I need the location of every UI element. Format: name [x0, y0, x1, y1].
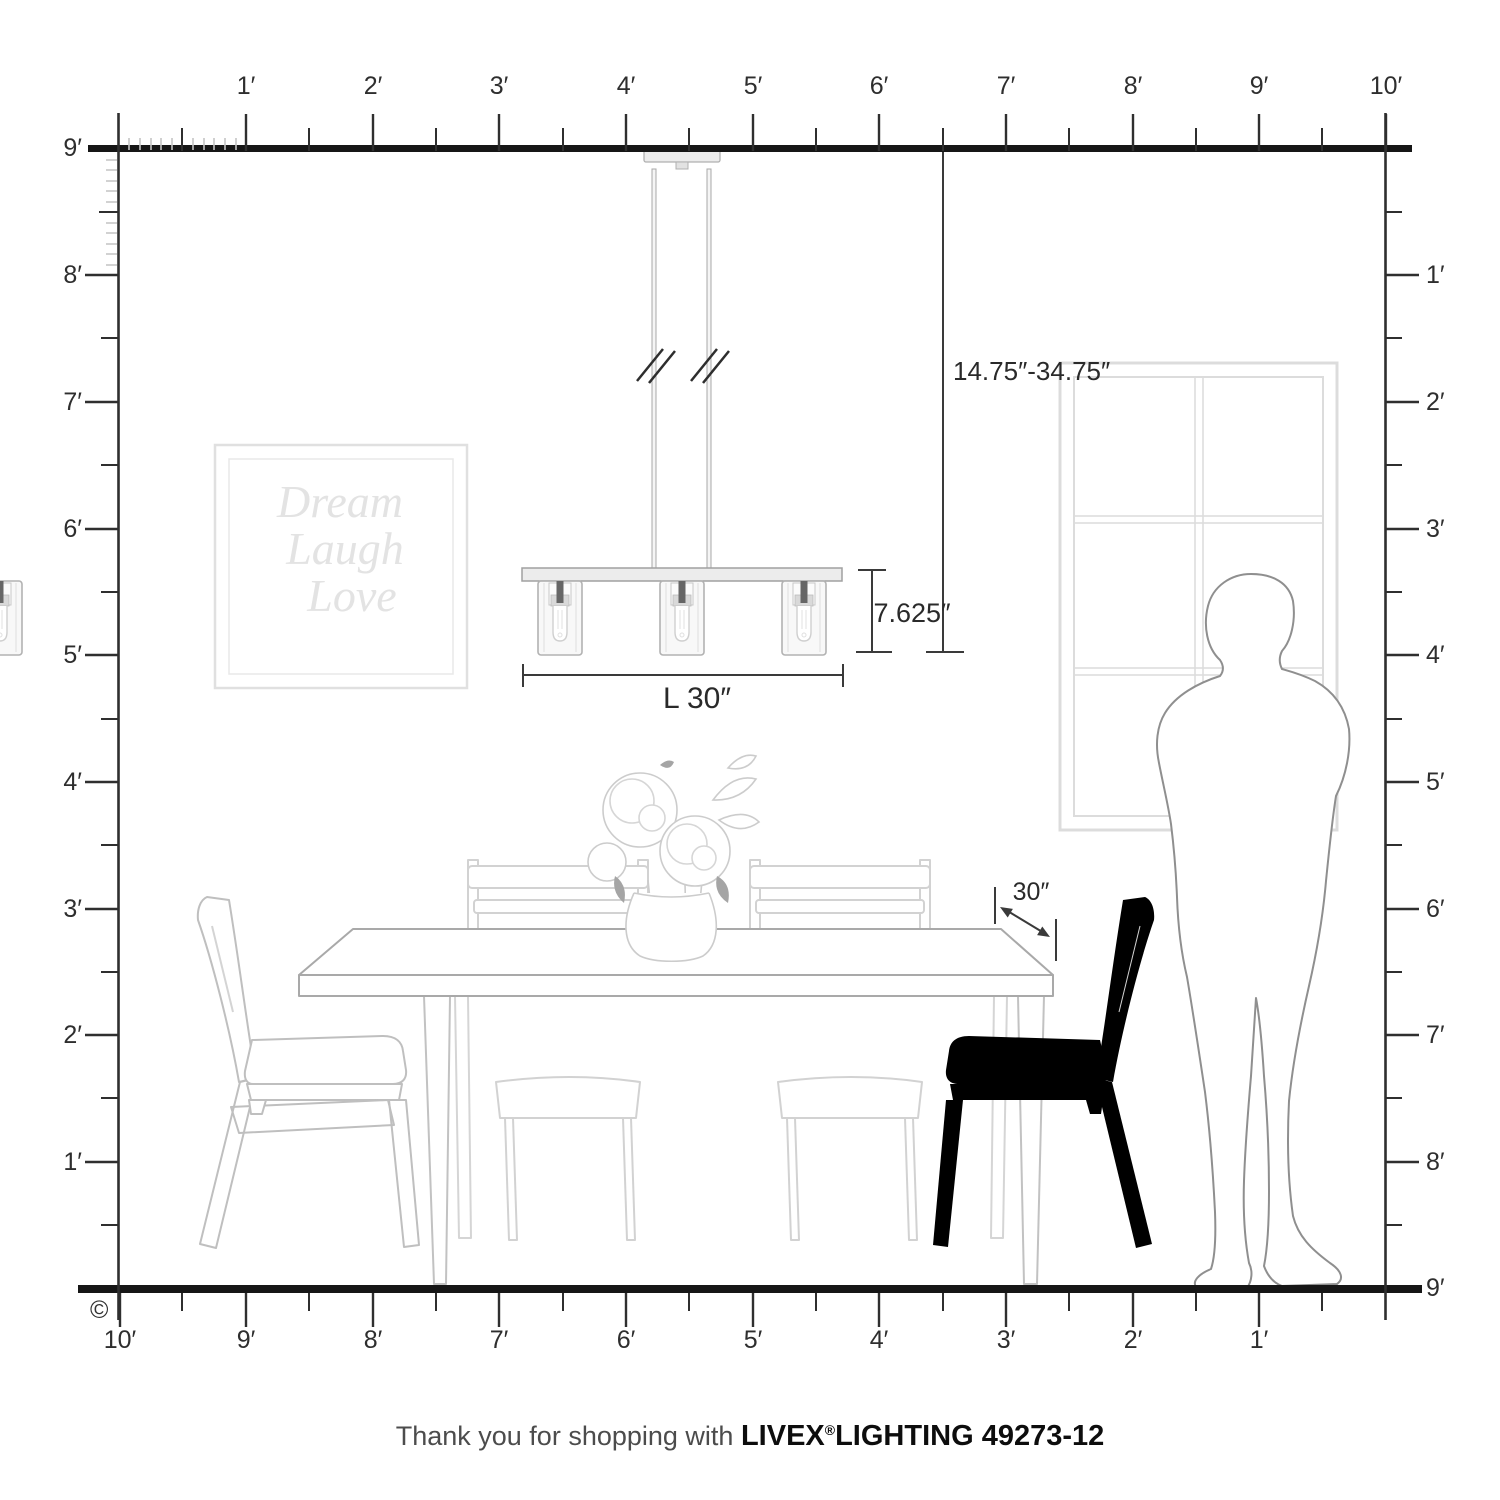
wall-art-line: Love: [246, 572, 458, 619]
right-ruler-label: 6′: [1426, 895, 1445, 923]
fixture-length-dimension: L 30″: [627, 682, 767, 716]
wall-art-line: Laugh: [232, 525, 458, 572]
left-ruler-label: 3′: [28, 895, 82, 923]
left-ruler-label: 8′: [28, 261, 82, 289]
bottom-ruler-label: 9′: [221, 1326, 271, 1354]
right-ruler-label: 9′: [1426, 1274, 1445, 1302]
bottom-ruler-label: 8′: [348, 1326, 398, 1354]
right-ruler-label: 2′: [1426, 388, 1445, 416]
left-ruler-label: 4′: [28, 768, 82, 796]
top-ruler-label: 9′: [1234, 72, 1284, 100]
fixture-bar: [522, 568, 842, 581]
top-ruler-label: 6′: [854, 72, 904, 100]
right-ruler-label: 4′: [1426, 641, 1445, 669]
bottom-ruler-label: 6′: [601, 1326, 651, 1354]
top-ruler-label: 5′: [728, 72, 778, 100]
right-ruler-label: 7′: [1426, 1021, 1445, 1049]
left-ruler-label: 7′: [28, 388, 82, 416]
left-ruler-label: 5′: [28, 641, 82, 669]
hang-height-line: [926, 152, 964, 652]
brand-name: LIVEX: [741, 1420, 825, 1452]
right-ruler-label: 3′: [1426, 515, 1445, 543]
wall-art-text: Dream Laugh Love: [222, 478, 458, 619]
top-ruler-label: 10′: [1358, 72, 1414, 100]
scene-graphics: [0, 0, 1500, 1500]
bottom-ruler-label: 5′: [728, 1326, 778, 1354]
dimension-diagram: 1′ 2′ 3′ 4′ 5′ 6′ 7′ 8′ 9′ 10′ 9′ 8′ 7′ …: [0, 0, 1500, 1500]
bottom-ruler-label: 3′: [981, 1326, 1031, 1354]
bottom-ruler-label: 7′: [474, 1326, 524, 1354]
top-ruler-label: 3′: [474, 72, 524, 100]
downrod: [652, 169, 656, 569]
bottom-ruler-label: 4′: [854, 1326, 904, 1354]
bottom-ruler-label: 2′: [1108, 1326, 1158, 1354]
top-ruler-label: 2′: [348, 72, 398, 100]
canopy-collar: [676, 162, 688, 169]
copyright-symbol: ©: [90, 1296, 108, 1325]
bottom-ruler-label: 10′: [92, 1326, 148, 1354]
table-clearance-dimension: 30″: [1000, 878, 1062, 907]
fixture-height-dimension: 7.625″: [866, 598, 958, 629]
left-ruler-label: 9′: [28, 134, 82, 162]
dimension-lines: [523, 152, 1056, 961]
downrod: [707, 169, 711, 569]
top-ruler-label: 1′: [221, 72, 271, 100]
left-ruler-label: 6′: [28, 515, 82, 543]
footer-prefix: Thank you for shopping with: [396, 1421, 734, 1451]
bottom-ruler-label: 1′: [1234, 1326, 1284, 1354]
left-ruler-label: 1′: [28, 1148, 82, 1176]
wall-art-line: Dream: [222, 478, 458, 525]
hang-range-dimension: 14.75″-34.75″: [953, 356, 1110, 387]
footer: Thank you for shopping with LIVEX®LIGHTI…: [0, 1420, 1500, 1453]
left-ruler-label: 2′: [28, 1021, 82, 1049]
registered-mark: ®: [825, 1422, 835, 1438]
floor-line: [78, 1285, 1422, 1293]
product-number: LIGHTING 49273-12: [835, 1420, 1104, 1452]
glass-shade: [0, 581, 22, 655]
rod-break-marks: [637, 349, 729, 383]
top-ruler-label: 4′: [601, 72, 651, 100]
right-ruler-label: 8′: [1426, 1148, 1445, 1176]
top-ruler-label: 8′: [1108, 72, 1158, 100]
ceiling-line: [88, 145, 1412, 152]
right-ruler-label: 5′: [1426, 768, 1445, 796]
top-ruler-label: 7′: [981, 72, 1031, 100]
right-ruler-label: 1′: [1426, 261, 1445, 289]
